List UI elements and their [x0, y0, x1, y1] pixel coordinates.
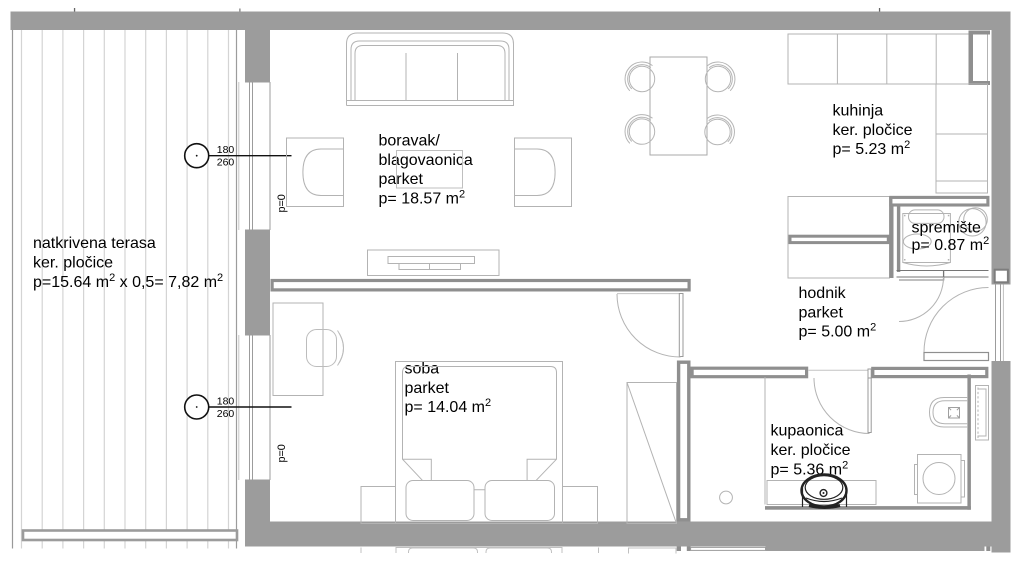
svg-text:p= 5.23 m2: p= 5.23 m2 [833, 139, 911, 158]
svg-text:180: 180 [217, 144, 235, 156]
svg-text:ker. pločice: ker. pločice [833, 122, 913, 139]
svg-text:p= 18.57 m2: p= 18.57 m2 [379, 188, 466, 207]
svg-text:ker. pločice: ker. pločice [33, 255, 113, 272]
svg-text:kuhinja: kuhinja [833, 103, 884, 120]
svg-text:soba: soba [405, 361, 440, 378]
svg-text:p=15.64 m2 x 0,5= 7,82 m2: p=15.64 m2 x 0,5= 7,82 m2 [33, 272, 223, 291]
svg-text:180: 180 [217, 396, 235, 408]
svg-text:p= 5.00 m2: p= 5.00 m2 [799, 322, 877, 341]
svg-text:parket: parket [405, 380, 450, 397]
svg-text:kupaonica: kupaonica [771, 423, 844, 440]
svg-text:blagovaonica: blagovaonica [379, 152, 473, 169]
svg-text:boravak/: boravak/ [379, 133, 441, 150]
svg-text:p= 14.04 m2: p= 14.04 m2 [405, 397, 492, 416]
svg-text:parket: parket [379, 171, 424, 188]
svg-text:p=0: p=0 [276, 444, 288, 462]
svg-text:spremište: spremište [912, 219, 981, 236]
svg-text:ker. pločice: ker. pločice [771, 442, 851, 459]
svg-text:natkrivena terasa: natkrivena terasa [33, 235, 156, 252]
svg-text:260: 260 [217, 408, 235, 420]
svg-text:p= 0.87 m2: p= 0.87 m2 [912, 235, 990, 254]
svg-text:p= 5.36 m2: p= 5.36 m2 [771, 459, 849, 478]
svg-text:260: 260 [217, 157, 235, 169]
svg-text:hodnik: hodnik [799, 285, 847, 302]
svg-text:parket: parket [799, 304, 844, 321]
